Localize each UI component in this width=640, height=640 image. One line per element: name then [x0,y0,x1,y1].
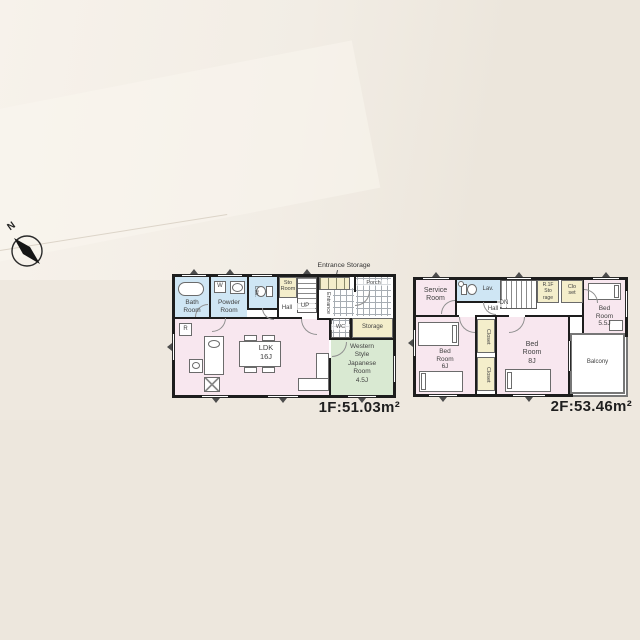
lavatory-2f-label: Lav. [479,286,497,293]
sofa-seat [298,378,329,391]
closet-b-label: Closet [482,361,491,388]
bedroom-6-label: Bed Room 6J [425,348,465,371]
porch-label: Porch [356,280,391,286]
refrigerator-label: R [179,326,192,333]
sink-bowl [232,283,243,292]
toilet-tank-1f [266,286,273,297]
window-mark [172,334,175,360]
chair [262,335,275,341]
cabinet-bowl [192,362,200,369]
wc-label: WC [331,324,350,330]
ldk-label: LDK 16J [244,344,288,362]
chair [244,335,257,341]
wall [455,280,457,315]
chair [262,367,275,373]
window-mark [507,277,531,280]
wall [495,317,497,394]
sofa-back [316,353,329,379]
wall [277,317,302,319]
area-label-1f: 1F:51.03m² [270,399,400,416]
wall [626,337,628,395]
vent-mark [602,272,610,277]
bathroom-label: Bath Room [175,299,209,314]
plan-2f: DN Hall R.1F Sto rage Clo set Closet Clo… [413,277,628,397]
stairs-up-label: UP [295,303,315,310]
bedroom-55-label: Bed Room 5.5J [584,305,625,328]
kitchen-sink [208,340,220,348]
chair [244,367,257,373]
bedroom-8-label: Bed Room 8J [511,341,553,366]
window-mark [218,274,242,277]
pillow [614,285,619,298]
wall [475,315,509,317]
vent-mark [432,272,440,277]
toilet-bowl-2f [467,284,477,295]
vent-mark [303,269,311,274]
vent-mark [212,398,220,403]
window-mark [182,274,206,277]
wall [525,315,584,317]
floorplan-page: N Entrance Storage W [0,0,640,640]
wall [329,338,393,340]
stair-storage-label: R.1F Sto rage [537,282,559,301]
washing-machine-label: W [214,283,226,290]
wall [416,315,459,317]
small-closet-label: Clo set [561,284,583,297]
closet-a-label: Closet [482,323,491,350]
corner-sink [458,281,464,287]
vent-mark [439,397,447,402]
balcony-door [568,341,571,371]
window-mark [625,291,628,317]
window-mark [393,356,396,382]
wall [573,395,628,397]
window-mark [423,277,449,280]
balcony-label: Balcony [570,359,625,366]
vent-mark [167,343,172,351]
window-mark [252,274,272,277]
pillow [452,325,457,343]
entrance-label: Entrance [321,289,331,317]
powder-label: Powder Room [211,299,247,314]
vent-mark [408,339,413,347]
hall-1f-label: Hall [277,305,297,312]
wall [175,317,277,319]
stove [204,377,220,392]
vent-mark [515,272,523,277]
window-mark [593,277,619,280]
wall [247,277,249,310]
storage-label: Storage [352,324,393,331]
plan-1f: W R Sto Room Storage WC UP [172,274,396,398]
background-lower [0,420,640,640]
bathtub [178,282,204,296]
service-room-label: Service Room [416,287,455,304]
window-mark [413,330,416,356]
area-label-2f: 2F:53.46m² [500,398,632,415]
japanese-room-label: Western Style Japanese Room 4.5J [331,343,393,385]
vent-mark [190,269,198,274]
lavatory-1f-label: Lav. [250,281,259,301]
pillow [507,372,512,389]
compass-icon [7,231,47,271]
entrance-tiles [333,288,354,316]
storage-room-label: Sto Room [279,280,297,293]
pillow [421,373,426,390]
vent-mark [226,269,234,274]
entrance-storage-callout: Entrance Storage [310,262,378,269]
